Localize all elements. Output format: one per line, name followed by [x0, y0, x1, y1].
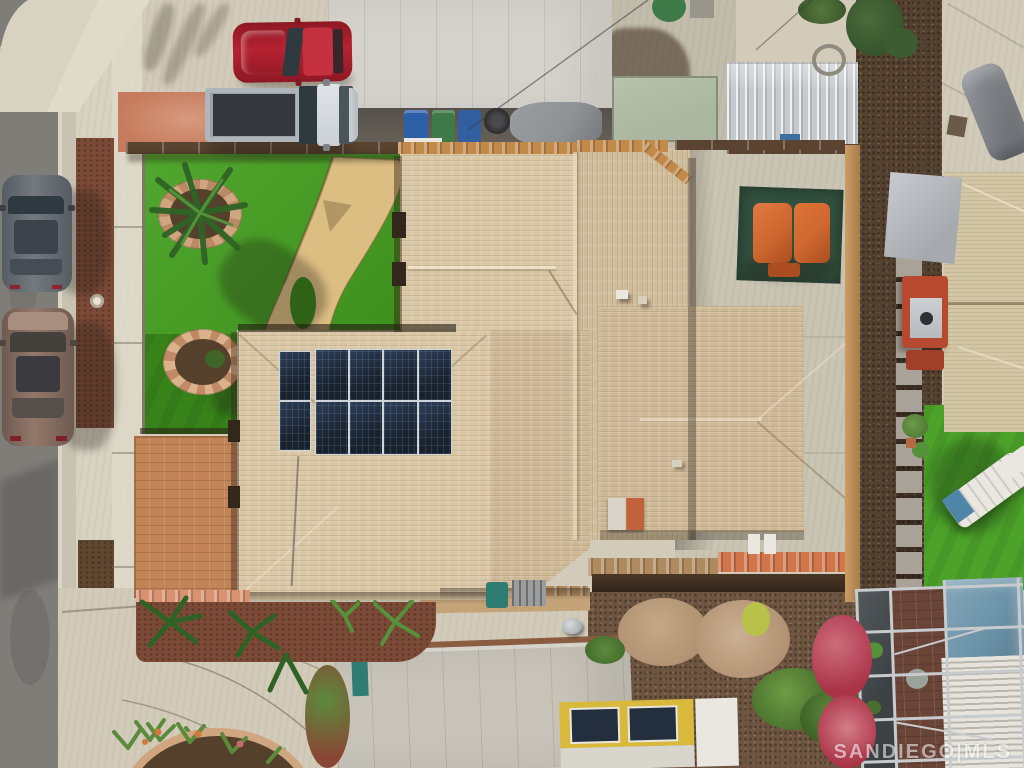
aerial-photo: SANDIEGO|MLS — [0, 0, 1024, 768]
power-line — [468, 0, 648, 130]
powerlines-overlay — [0, 0, 1024, 768]
power-line-2 — [756, 0, 812, 50]
mls-watermark: SANDIEGO|MLS — [834, 741, 1013, 764]
